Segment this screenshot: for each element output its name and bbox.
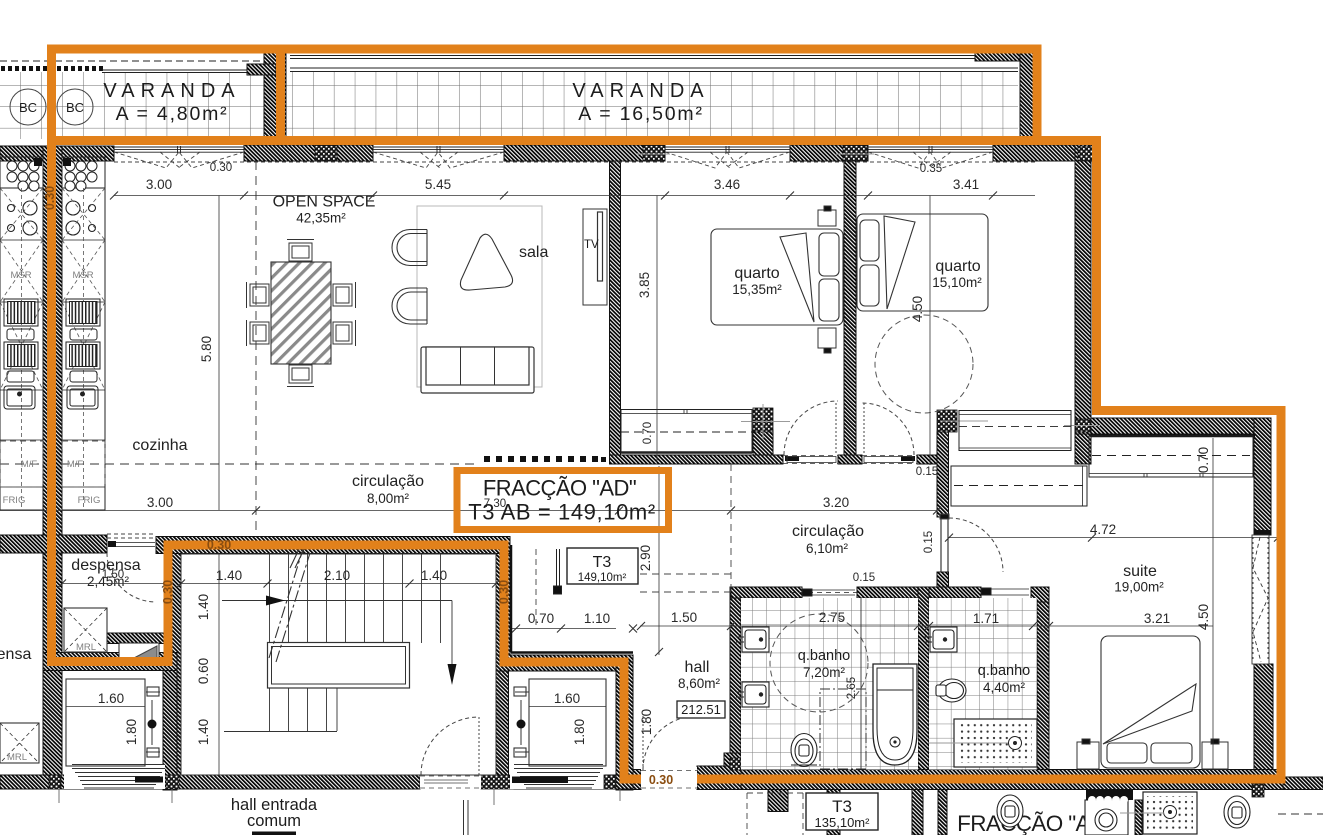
svg-text:circulação: circulação xyxy=(792,523,864,540)
svg-text:circulação: circulação xyxy=(352,473,424,490)
svg-text:42,35m²: 42,35m² xyxy=(296,211,346,226)
svg-text:4,40m²: 4,40m² xyxy=(983,680,1026,695)
svg-text:1.80: 1.80 xyxy=(639,709,654,735)
svg-text:q.banho: q.banho xyxy=(798,648,850,664)
svg-text:0.70: 0.70 xyxy=(1196,447,1211,473)
svg-text:comum: comum xyxy=(247,812,301,830)
svg-text:8,60m²: 8,60m² xyxy=(678,676,721,691)
svg-text:149,10m²: 149,10m² xyxy=(578,572,627,584)
svg-text:3.21: 3.21 xyxy=(1144,611,1170,626)
svg-text:8,00m²: 8,00m² xyxy=(367,491,410,506)
svg-text:MSR: MSR xyxy=(10,270,31,281)
svg-text:0.30: 0.30 xyxy=(649,773,673,787)
svg-text:VARANDA: VARANDA xyxy=(572,80,709,102)
svg-text:ensa: ensa xyxy=(0,646,31,663)
svg-text:2.10: 2.10 xyxy=(324,568,350,583)
svg-text:1.80: 1.80 xyxy=(124,719,139,745)
svg-text:19,00m²: 19,00m² xyxy=(1114,580,1164,595)
svg-text:0.70: 0.70 xyxy=(642,422,654,444)
svg-text:MSR: MSR xyxy=(72,270,93,281)
svg-text:4.50: 4.50 xyxy=(910,296,925,322)
svg-text:FRACÇÃO "AD": FRACÇÃO "AD" xyxy=(483,476,636,501)
svg-text:0.60: 0.60 xyxy=(196,658,211,684)
svg-text:OPEN SPACE: OPEN SPACE xyxy=(273,194,376,211)
svg-text:suite: suite xyxy=(1123,563,1157,580)
svg-text:q.banho: q.banho xyxy=(978,663,1030,679)
svg-text:1.40: 1.40 xyxy=(196,719,211,745)
svg-text:3.20: 3.20 xyxy=(823,495,849,510)
svg-text:VARANDA: VARANDA xyxy=(103,80,240,102)
svg-text:FRIG: FRIG xyxy=(78,495,101,506)
svg-text:2.75: 2.75 xyxy=(819,610,845,625)
svg-text:0.30: 0.30 xyxy=(207,538,231,552)
svg-text:1.60: 1.60 xyxy=(554,691,580,706)
svg-text:0.35: 0.35 xyxy=(920,163,942,175)
svg-text:5.80: 5.80 xyxy=(199,336,214,362)
svg-text:1.80: 1.80 xyxy=(572,719,587,745)
svg-text:1.40: 1.40 xyxy=(421,568,447,583)
svg-text:sala: sala xyxy=(519,244,548,261)
svg-text:MRL: MRL xyxy=(76,642,96,653)
svg-text:0.30: 0.30 xyxy=(161,580,175,604)
svg-text:0.30: 0.30 xyxy=(497,580,511,604)
svg-text:2.90: 2.90 xyxy=(638,545,653,571)
svg-text:FRIG: FRIG xyxy=(3,495,26,506)
svg-text:2.65: 2.65 xyxy=(846,677,858,699)
svg-text:MRL: MRL xyxy=(7,752,27,763)
svg-text:M/F: M/F xyxy=(67,459,84,470)
svg-text:0.15: 0.15 xyxy=(916,466,938,478)
svg-text:0.30: 0.30 xyxy=(43,186,57,210)
svg-text:M/F: M/F xyxy=(21,459,38,470)
svg-text:T3 AB = 149,10m²: T3 AB = 149,10m² xyxy=(468,500,656,525)
svg-text:T3: T3 xyxy=(593,554,612,571)
svg-text:3.46: 3.46 xyxy=(714,177,740,192)
svg-text:1.60: 1.60 xyxy=(98,691,124,706)
svg-text:quarto: quarto xyxy=(935,258,980,275)
svg-text:quarto: quarto xyxy=(734,265,779,282)
svg-text:BC: BC xyxy=(19,100,37,115)
svg-text:3.00: 3.00 xyxy=(147,495,173,510)
svg-text:3.41: 3.41 xyxy=(953,177,979,192)
svg-text:T3: T3 xyxy=(832,797,852,816)
svg-text:0.15: 0.15 xyxy=(923,531,935,553)
svg-text:135,10m²: 135,10m² xyxy=(815,815,871,830)
svg-text:212.51: 212.51 xyxy=(681,702,721,717)
svg-text:A = 16,50m²: A = 16,50m² xyxy=(578,103,704,125)
svg-text:3.00: 3.00 xyxy=(146,177,172,192)
svg-text:3.85: 3.85 xyxy=(637,272,652,298)
svg-text:A = 4,80m²: A = 4,80m² xyxy=(116,103,229,125)
svg-text:TV: TV xyxy=(584,239,599,251)
svg-text:1.50: 1.50 xyxy=(671,610,697,625)
svg-text:0.30: 0.30 xyxy=(210,162,232,174)
svg-text:hall: hall xyxy=(685,659,710,676)
svg-text:1.50: 1.50 xyxy=(102,569,124,581)
svg-text:BC: BC xyxy=(66,100,84,115)
svg-text:cozinha: cozinha xyxy=(132,437,187,454)
svg-text:1.71: 1.71 xyxy=(973,611,999,626)
svg-text:1.40: 1.40 xyxy=(216,568,242,583)
svg-text:6,10m²: 6,10m² xyxy=(806,541,849,556)
svg-text:0.70: 0.70 xyxy=(528,611,554,626)
svg-text:4.72: 4.72 xyxy=(1090,522,1116,537)
svg-text:1.40: 1.40 xyxy=(196,594,211,620)
svg-text:15,35m²: 15,35m² xyxy=(732,282,782,297)
svg-text:15,10m²: 15,10m² xyxy=(932,275,982,290)
svg-text:7,20m²: 7,20m² xyxy=(803,665,846,680)
svg-text:0.15: 0.15 xyxy=(853,572,875,584)
svg-text:1.10: 1.10 xyxy=(584,611,610,626)
svg-text:5.45: 5.45 xyxy=(425,177,451,192)
